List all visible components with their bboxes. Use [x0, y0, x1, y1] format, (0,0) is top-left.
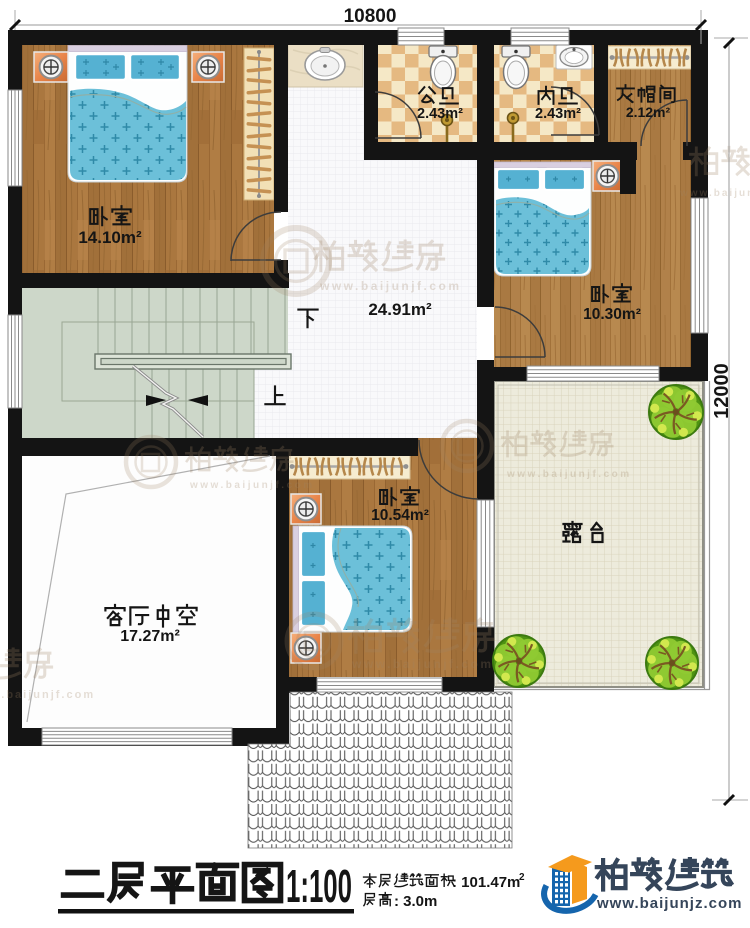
- svg-text:2.43m²: 2.43m²: [417, 106, 463, 122]
- svg-text:17.27m²: 17.27m²: [120, 628, 180, 645]
- svg-text:www.baijunjf.com: www.baijunjf.com: [679, 188, 750, 199]
- svg-text:12000: 12000: [711, 363, 733, 419]
- svg-text:www.baijunjf.com: www.baijunjf.com: [0, 689, 95, 701]
- svg-text:2.43m²: 2.43m²: [535, 106, 581, 122]
- svg-text:: 101.47m: : 101.47m: [452, 874, 520, 891]
- svg-text:10.30m²: 10.30m²: [583, 306, 641, 323]
- svg-text:www.baijunjf.com: www.baijunjf.com: [506, 469, 632, 480]
- svg-text:www.baijunjf.com: www.baijunjf.com: [189, 480, 315, 491]
- svg-text:2.12m²: 2.12m²: [626, 104, 671, 120]
- svg-text:10800: 10800: [344, 6, 397, 27]
- svg-text:: 3.0m: : 3.0m: [394, 893, 437, 910]
- svg-text:www.baijunjf.com: www.baijunjf.com: [319, 279, 462, 293]
- svg-text:1:100: 1:100: [286, 860, 352, 912]
- svg-text:2: 2: [519, 872, 525, 883]
- svg-text:www.baijunjf.com: www.baijunjf.com: [351, 657, 494, 671]
- svg-text:10.54m²: 10.54m²: [371, 507, 429, 524]
- svg-text:14.10m²: 14.10m²: [78, 228, 142, 247]
- svg-text:24.91m²: 24.91m²: [368, 300, 432, 319]
- svg-text:www.baijunjz.com: www.baijunjz.com: [596, 895, 742, 912]
